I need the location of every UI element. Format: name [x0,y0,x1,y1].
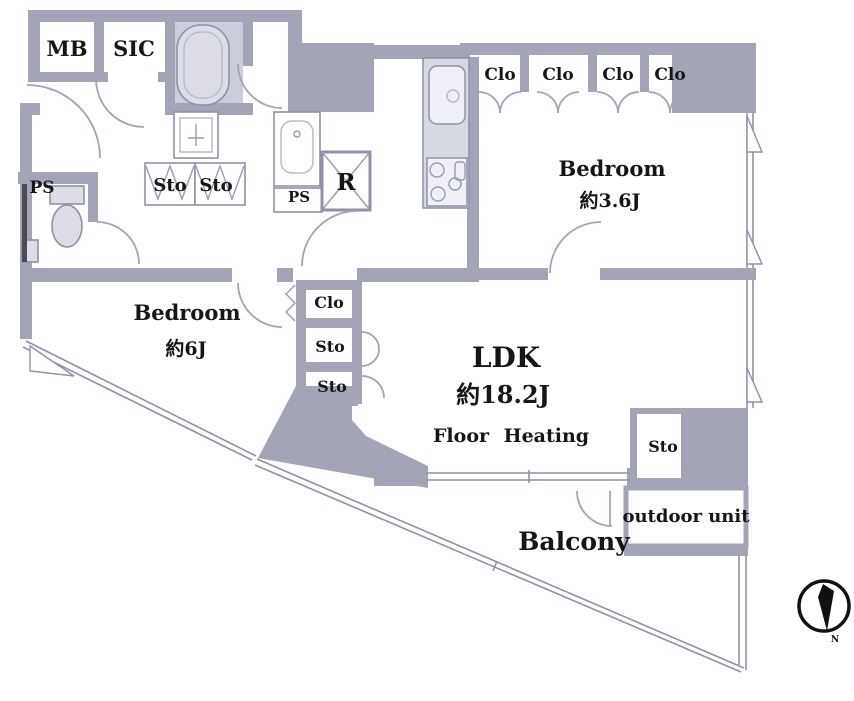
wall-segment [520,55,529,92]
wall-segment [296,318,358,328]
label-mb: MB [47,36,88,61]
wall-segment [277,268,293,282]
label-clo-1: Clo [484,65,515,85]
label-ldk: LDK [472,341,542,374]
bathtub [177,25,229,105]
label-sic: SIC [113,36,155,61]
label-sto-mid-1: Sto [315,337,345,356]
label-sto-right: Sto [648,437,678,456]
label-ps-wc: PS [29,178,54,198]
wall-segment [296,280,358,290]
wall-segment [302,43,374,112]
label-clo-4: Clo [654,65,685,85]
toilet-bowl [52,205,82,247]
wall-segment [20,268,232,282]
wall-segment [296,280,306,404]
wall-segment [20,103,40,115]
wall-segment [374,468,428,486]
label-bedroom-right-size: 約3.6J [579,189,640,212]
label-bedroom-right: Bedroom [558,156,665,181]
label-clo-mid: Clo [314,293,344,312]
wc-duct [22,184,27,262]
label-sto-hall-2: Sto [199,175,232,196]
wall-segment [28,10,40,82]
wall-segment [460,43,692,55]
wall-segment [352,280,362,404]
label-balcony: Balcony [518,527,631,556]
label-fridge: R [336,169,356,196]
label-clo-2: Clo [542,65,573,85]
wall-segment [588,55,597,92]
wall-segment [296,362,358,372]
wall-segment [374,45,470,59]
wall-segment [288,15,302,112]
floor-plan-page: MB SIC PS Sto Sto PS R Clo Clo Clo Clo B… [0,0,854,701]
label-bedroom-left-size: 約6J [165,337,206,360]
label-bedroom-left: Bedroom [133,300,240,325]
compass-north-label: N [831,635,839,645]
label-sto-mid-2: Sto [317,377,347,396]
label-floor-heating: Floor Heating [433,425,589,447]
label-ps-mid: PS [288,188,310,206]
wall-segment [640,55,649,92]
wall-segment [243,22,253,66]
label-ldk-size: 約18.2J [456,380,550,409]
label-sto-hall-1: Sto [153,175,186,196]
label-clo-3: Clo [602,65,633,85]
wall-segment [94,22,104,72]
wall-segment [165,12,175,115]
toilet-tank [50,186,84,204]
wall-segment [479,268,548,280]
wall-segment [88,184,98,222]
wall-segment [357,268,479,282]
label-outdoor-unit: outdoor unit [622,506,750,527]
wall-segment [600,268,756,280]
floor-plan-svg: MB SIC PS Sto Sto PS R Clo Clo Clo Clo B… [0,0,854,701]
